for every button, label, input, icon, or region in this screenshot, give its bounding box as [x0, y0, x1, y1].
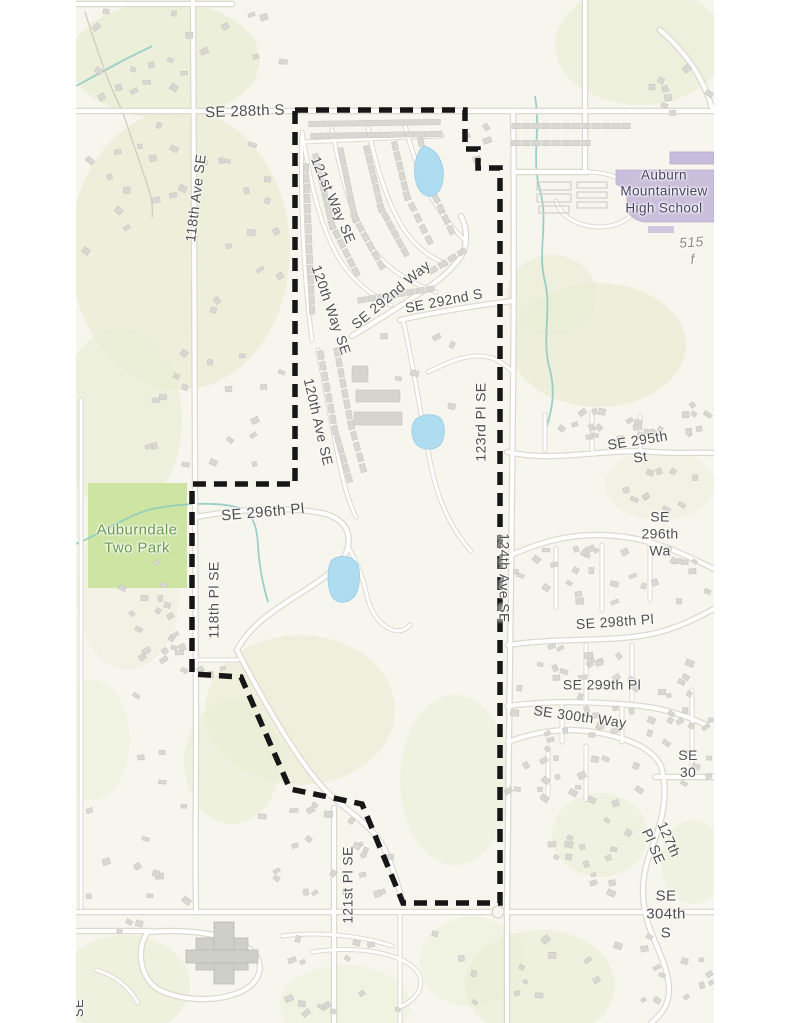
map-labels-layer: SE 288th S118th Ave SE121st Way SE120th … — [76, 0, 714, 1023]
street-label-auburn-mountainview-high-school: Auburn Mountainview High School — [620, 167, 707, 216]
street-label-se-30x: SE 30 — [675, 747, 701, 781]
street-label-123rd-pl-se: 123rd Pl SE — [472, 382, 489, 461]
street-label-se-296th-pl: SE 296th Pl — [221, 500, 306, 526]
street-label-se-296th-way: SE 296th Wa — [633, 508, 687, 559]
street-label-se-304th-st: SE 304th S — [642, 888, 690, 943]
map-screenshot: SE 288th S118th Ave SE121st Way SE120th … — [0, 0, 791, 1023]
street-label-121st-way-se: 121st Way SE — [307, 154, 359, 246]
street-label-auburndale-two-park: Auburndale Two Park — [97, 522, 178, 559]
street-label-edge-label-se: SE — [76, 999, 87, 1017]
map-canvas: SE 288th S118th Ave SE121st Way SE120th … — [76, 0, 714, 1023]
street-label-se-292nd-st: SE 292nd S — [404, 285, 485, 317]
street-label-120th-ave-se: 120th Ave SE — [300, 377, 337, 468]
street-label-se-292nd-way: SE 292nd Way — [348, 257, 434, 333]
street-label-124th-ave-se: 124th Ave SE — [495, 533, 512, 622]
street-label-se-299th-pl: SE 299th Pl — [563, 676, 641, 693]
street-label-se-298th-pl: SE 298th Pl — [575, 611, 654, 634]
street-label-se-300th-way: SE 300th Way — [532, 702, 627, 732]
street-label-127th-pl-se: 127th Pl SE — [635, 812, 688, 874]
street-label-120th-way-se: 120th Way SE — [308, 263, 355, 357]
street-label-distance-515-ft: 515 f — [679, 233, 706, 269]
street-label-se-288th-st: SE 288th S — [205, 101, 285, 122]
street-label-118th-ave-se: 118th Ave SE — [182, 153, 210, 243]
street-label-121st-pl-se: 121st Pl SE — [339, 846, 356, 924]
street-label-se-295th-st: SE 295th St — [599, 426, 678, 471]
street-label-118th-pl-se: 118th Pl SE — [205, 561, 222, 638]
